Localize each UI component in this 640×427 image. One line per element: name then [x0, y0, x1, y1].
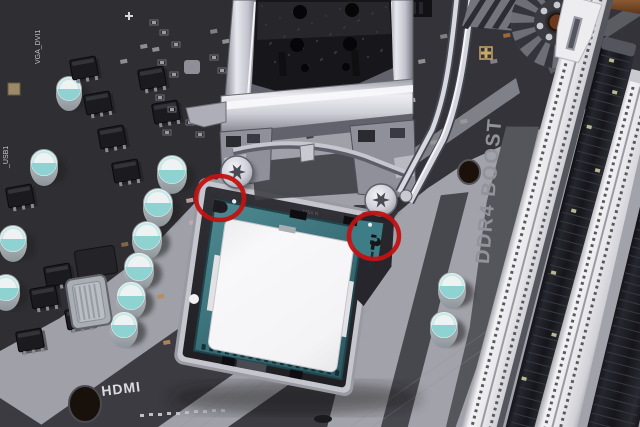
svg-text:_USB1: _USB1 [3, 146, 10, 169]
svg-text:VGA_DVI1: VGA_DVI1 [35, 30, 42, 64]
